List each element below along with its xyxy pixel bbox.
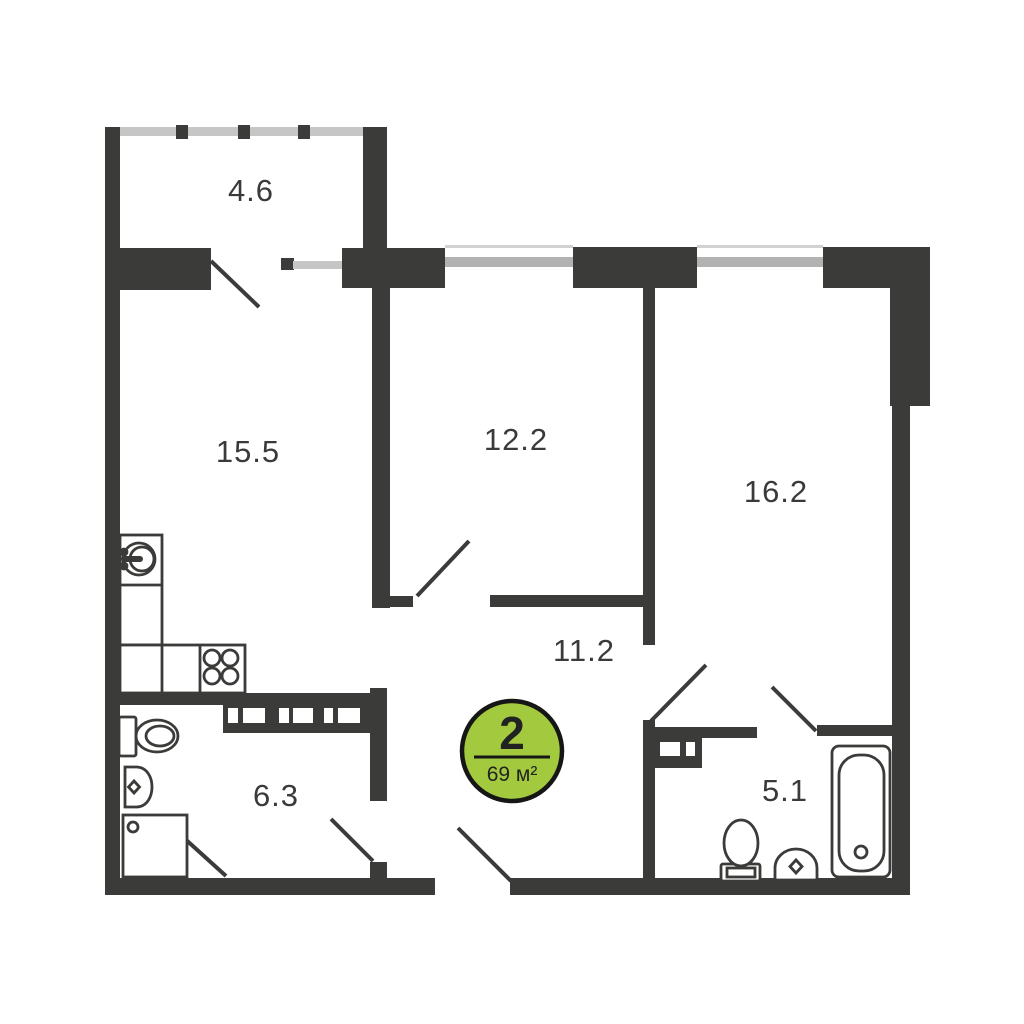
room-label-bedroom: 12.2 xyxy=(484,422,548,457)
washbasin-icon-bathroom xyxy=(125,767,152,807)
door-swing-bedroom xyxy=(417,541,469,596)
floor-plan-page: 4.6 15.5 12.2 16.2 11.2 6.3 5.1 2 69 м² xyxy=(0,0,1024,1024)
shower-icon xyxy=(123,815,187,877)
window-living-room xyxy=(697,245,823,267)
windows xyxy=(120,125,823,270)
vent-shaft-bathroom xyxy=(223,705,372,733)
door-swing-bathroom-2 xyxy=(772,687,816,731)
door-swing-bathroom xyxy=(331,819,373,861)
toilet-icon-bathroom xyxy=(119,717,178,756)
door-swing-balcony xyxy=(211,261,259,307)
room-label-balcony: 4.6 xyxy=(228,173,274,208)
room-label-hallway: 11.2 xyxy=(553,633,615,668)
shower-door-line xyxy=(184,838,226,876)
balcony-partition-glazing xyxy=(281,258,342,270)
badge-rooms-count: 2 xyxy=(499,707,525,759)
room-label-bathroom-2: 5.1 xyxy=(762,773,808,808)
window-bedroom xyxy=(445,245,573,267)
door-swing-living xyxy=(651,665,706,721)
balcony-glazing xyxy=(120,125,363,139)
badge-total-area: 69 м² xyxy=(487,763,538,786)
bathtub-icon xyxy=(832,746,890,877)
room-label-bathroom: 6.3 xyxy=(253,778,299,813)
washbasin-icon-bathroom-2 xyxy=(775,849,817,880)
toilet-icon-bathroom-2 xyxy=(721,820,760,881)
door-swing-entry xyxy=(458,828,511,881)
room-label-living-room: 16.2 xyxy=(744,474,808,509)
floor-plan: 4.6 15.5 12.2 16.2 11.2 6.3 5.1 2 69 м² xyxy=(0,0,1024,1024)
vent-shaft-bathroom-2 xyxy=(655,738,702,768)
sink-icon xyxy=(121,543,155,575)
apartment-summary-badge: 2 69 м² xyxy=(462,701,562,801)
room-label-kitchen-living: 15.5 xyxy=(216,434,280,469)
